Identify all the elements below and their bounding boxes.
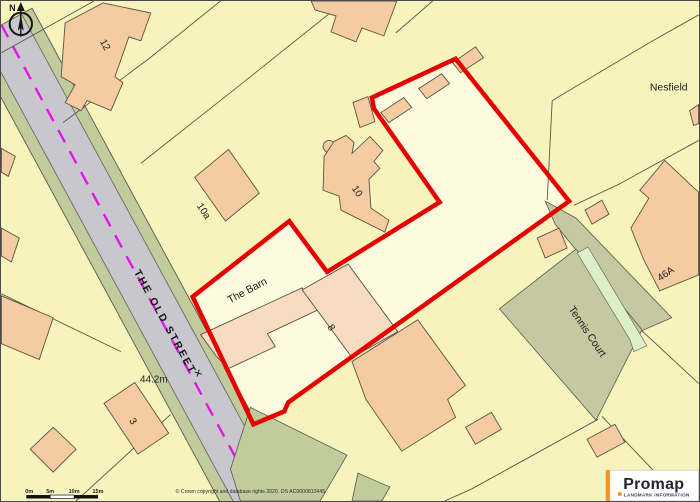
map-canvas[interactable]: 12 10a 10 8 3 46A Nesfield The Barn Tenn… (0, 0, 700, 502)
promap-logo: Promap LANDMARK INFORMATION (606, 470, 699, 501)
compass-north-label: N (9, 3, 15, 13)
scale-tick: 0m (25, 489, 33, 495)
promap-tagline: LANDMARK INFORMATION (624, 492, 690, 497)
scale-tick: 15m (93, 489, 104, 495)
copyright-notice: © Crown copyright and database rights 20… (176, 488, 326, 495)
label-nesfield: Nesfield (650, 83, 688, 94)
promap-orange-strip (606, 470, 610, 501)
landmark-square-icon (618, 492, 622, 496)
scale-tick: 5m (46, 489, 54, 495)
promap-logo-text: Promap (623, 476, 684, 493)
scale-tick: 10m (69, 489, 80, 495)
label-spot-height: 44.2m (140, 374, 168, 385)
